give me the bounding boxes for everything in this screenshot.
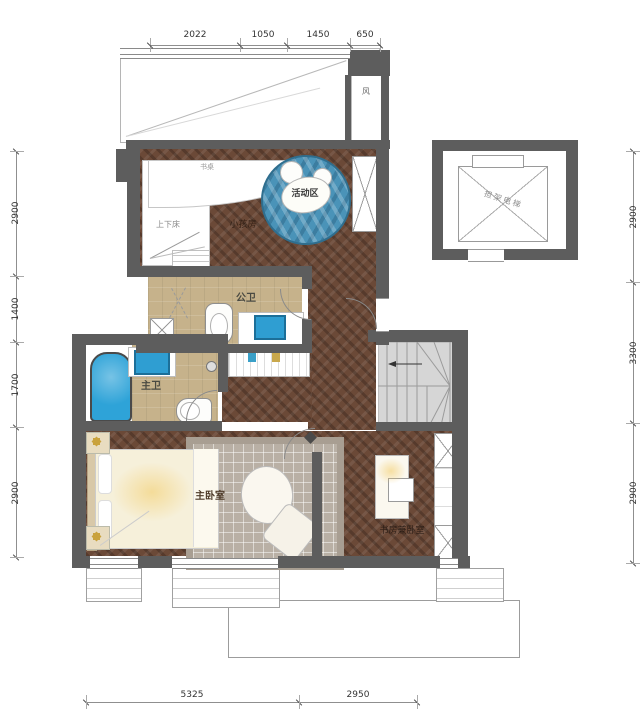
terrace-window: [120, 48, 350, 59]
lower-terrace-outline: [228, 600, 520, 658]
bed-glow: [112, 462, 192, 522]
wall-right-lower: [452, 330, 468, 568]
dim-ext: [626, 151, 640, 152]
wall-terrace-corner: [348, 50, 390, 76]
window-bottom-left: [90, 558, 138, 569]
wall-masterbath-top: [72, 334, 228, 345]
wall-elevator-bottom: [432, 249, 578, 260]
vent-shaft: [351, 75, 383, 143]
wall-kids-left: [127, 140, 140, 274]
desk-glow: [376, 458, 406, 484]
public-bathroom-label: 公卫: [226, 293, 266, 304]
vent-label: 风: [352, 88, 380, 97]
wall-elevator-top: [432, 140, 578, 151]
elevator-counterweight: [472, 155, 524, 168]
lamp-star-icon-2: [93, 533, 100, 540]
wall-elevator-right: [566, 140, 578, 260]
bunk-bed-label: 上下床: [146, 221, 190, 230]
closet-item-blue: [248, 352, 256, 362]
dim-ext: [10, 342, 24, 343]
wall-bottom-d: [458, 556, 470, 568]
bathtub: [90, 352, 132, 422]
dim-ext: [86, 695, 87, 709]
dim-right-2: 3300: [629, 333, 639, 373]
pillow-1: [98, 454, 112, 494]
dim-right-3: 2900: [629, 473, 639, 513]
dim-left-4: 2900: [11, 473, 21, 513]
dim-left-1: 2900: [11, 193, 21, 233]
wall-bedroom-study-divider: [312, 452, 322, 556]
dim-ext: [626, 423, 640, 424]
wall-kids-top: [126, 140, 390, 149]
wall-bath-right-a: [302, 277, 312, 289]
balcony-left: [86, 568, 142, 602]
dim-left-3: 1700: [11, 365, 21, 405]
floor-plan: 风 书桌 上下床 小孩房 活动区 担架电梯 公卫 主卫: [0, 0, 640, 712]
dim-ext: [10, 557, 24, 558]
wall-bottom-a: [72, 556, 90, 568]
sink-public: [254, 315, 286, 340]
dim-line-top: [150, 45, 380, 46]
balcony-right: [436, 568, 504, 602]
window-bottom-mid: [172, 558, 278, 569]
dim-bottom-1: 5325: [172, 690, 212, 700]
wall-bottom-b: [138, 556, 172, 568]
dim-ext: [10, 427, 24, 428]
sink-master: [134, 350, 170, 375]
wall-bottom-c: [278, 556, 440, 568]
dim-ext: [10, 151, 24, 152]
wall-left-outer: [72, 334, 86, 566]
kids-wardrobe: [352, 156, 378, 232]
window-bottom-right: [440, 558, 458, 569]
desk-label: 书桌: [192, 164, 222, 172]
wall-kids-bath-divider: [127, 266, 312, 277]
entry-door-opening: [376, 298, 389, 332]
wall-bath-right-b: [302, 319, 312, 345]
dim-ext: [10, 276, 24, 277]
wall-kids-left-stub: [116, 149, 127, 182]
bay-window-mid: [172, 568, 280, 608]
dim-line-bottom: [86, 702, 417, 703]
dim-top-2: 1050: [243, 30, 283, 40]
dim-ext: [417, 695, 418, 709]
wall-elevator-left: [432, 140, 443, 260]
elevator-door: [468, 249, 504, 262]
master-bedroom-label: 主卧室: [184, 491, 236, 502]
wall-under-stairs: [376, 422, 452, 431]
dim-ext: [626, 563, 640, 564]
study-bedroom-label: 书房兼卧室: [360, 527, 444, 537]
wall-vent-right: [381, 75, 389, 141]
dim-right-1: 2900: [629, 197, 639, 237]
dim-ext: [299, 695, 300, 709]
dim-top-4: 650: [345, 30, 385, 40]
dim-ext: [626, 282, 640, 283]
staircase: [378, 342, 454, 430]
master-bathroom-label: 主卫: [134, 381, 168, 392]
wall-bed-bath-divider: [86, 421, 222, 431]
dim-top-3: 1450: [298, 30, 338, 40]
wall-vent-left: [345, 75, 351, 141]
dim-left-2: 1400: [11, 289, 21, 329]
dim-top-1: 2022: [175, 30, 215, 40]
wall-masterbath-right: [218, 344, 228, 392]
shower-head-icon: [206, 361, 217, 372]
activity-area-label: 活动区: [283, 190, 327, 200]
lamp-star-icon-1: [93, 438, 100, 445]
dim-bottom-2: 2950: [338, 690, 378, 700]
kids-room-label: 小孩房: [220, 221, 266, 231]
closet-item-gold: [272, 352, 280, 362]
